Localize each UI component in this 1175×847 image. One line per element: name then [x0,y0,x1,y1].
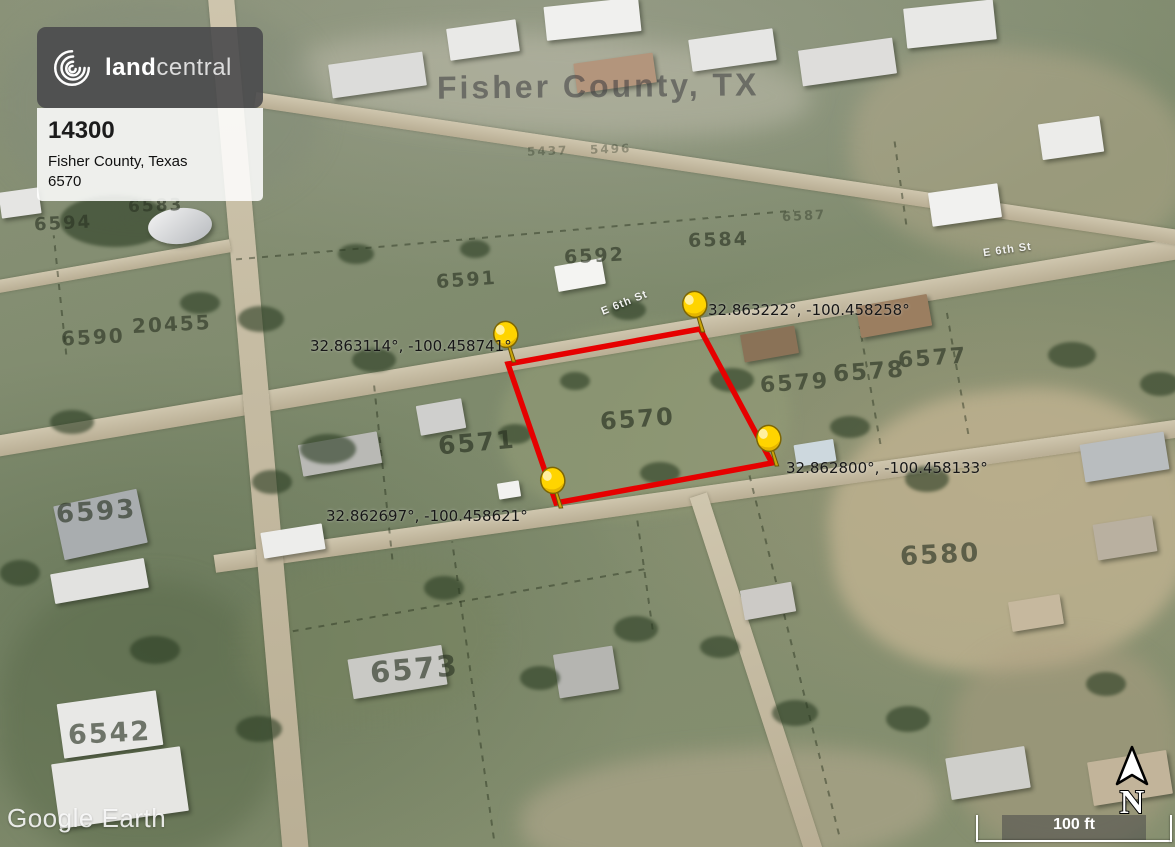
scale-bar-line [976,840,1172,842]
wordmark-bold: land [105,54,156,81]
pin-southeast[interactable] [751,422,791,470]
landcentral-logo-icon [50,46,94,90]
landcentral-wordmark: landcentral [105,54,232,82]
listing-lot-number: 6570 [48,172,252,192]
listing-location: Fisher County, Texas [48,152,252,172]
landcentral-badge: landcentral [37,27,263,108]
listing-id: 14300 [48,117,252,145]
scale-bar-label: 100 ft [976,816,1172,834]
pin-southwest[interactable] [535,464,575,512]
wordmark-light: central [156,54,232,81]
pin-coordinates-label: 32.862800°, -100.458133° [786,459,988,477]
listing-info-card: 14300 Fisher County, Texas 6570 [37,108,263,201]
pin-coordinates-label: 32.862697°, -100.458621° [326,507,528,525]
pin-coordinates-label: 32.863114°, -100.458741° [310,337,512,355]
pin-coordinates-label: 32.863222°, -100.458258° [708,301,910,319]
map-viewport[interactable]: 6583659420455659054375496658765916592658… [0,0,1175,847]
north-arrow-icon: N [1106,744,1158,818]
north-label: N [1120,784,1145,818]
